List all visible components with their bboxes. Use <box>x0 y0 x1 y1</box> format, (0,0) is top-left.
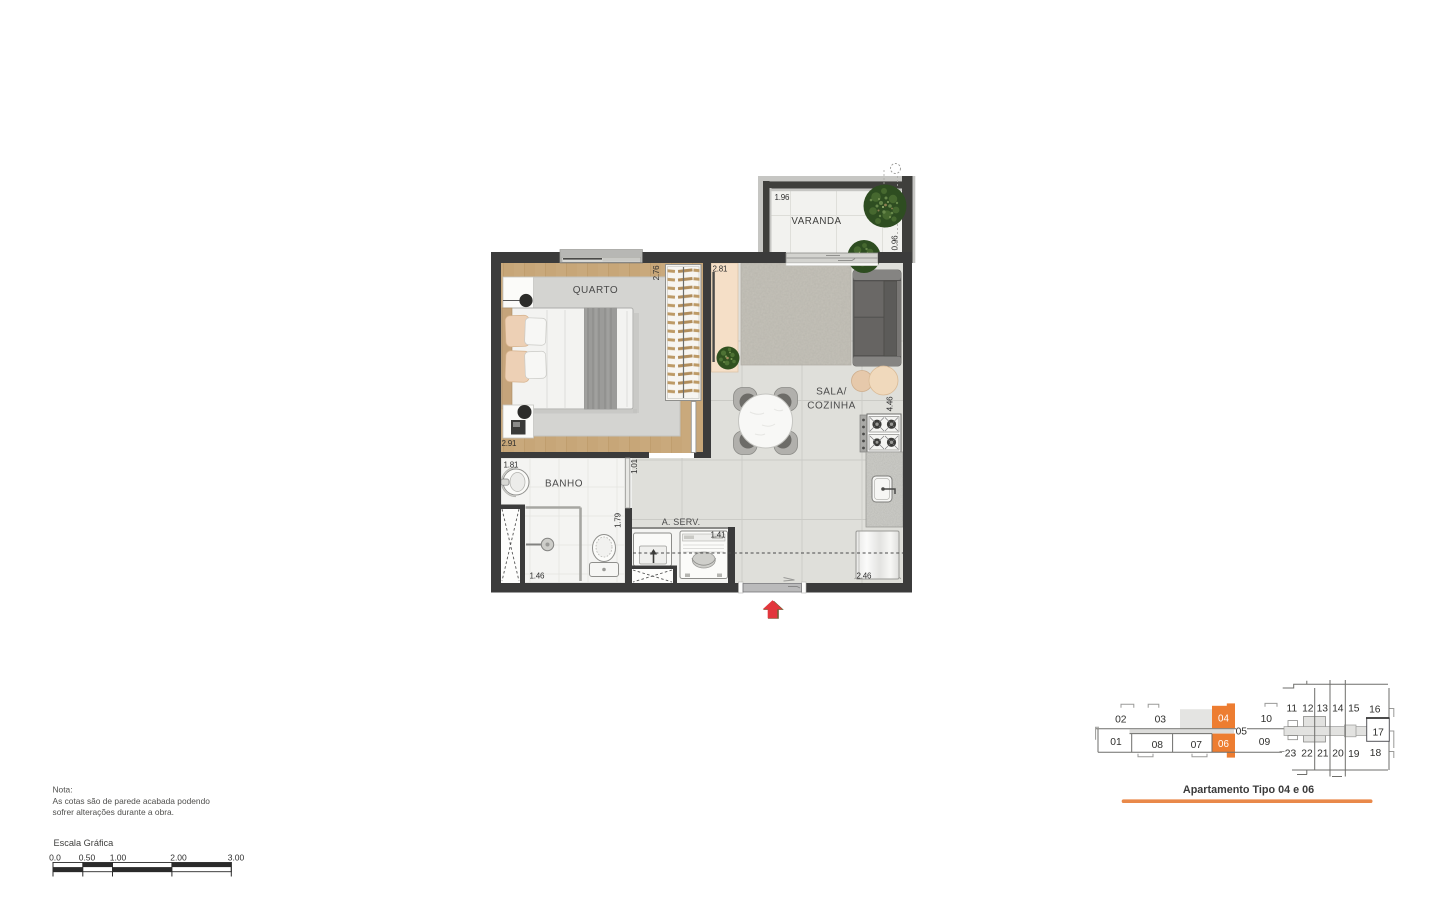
svg-text:15: 15 <box>1348 703 1360 714</box>
svg-text:2.76: 2.76 <box>652 265 661 281</box>
svg-text:02: 02 <box>1115 714 1127 725</box>
svg-text:1.01: 1.01 <box>630 458 639 474</box>
svg-text:2.91: 2.91 <box>502 439 518 448</box>
svg-text:QUARTO: QUARTO <box>573 285 618 296</box>
svg-text:13: 13 <box>1317 703 1329 714</box>
svg-text:1.00: 1.00 <box>110 853 127 863</box>
svg-text:20: 20 <box>1332 748 1344 759</box>
svg-text:1.46: 1.46 <box>530 572 546 581</box>
svg-text:1.79: 1.79 <box>614 512 623 528</box>
svg-text:Nota:: Nota: <box>53 785 73 795</box>
svg-text:08: 08 <box>1152 740 1164 751</box>
svg-text:21: 21 <box>1317 748 1329 759</box>
svg-text:1.41: 1.41 <box>711 531 727 540</box>
svg-text:2.81: 2.81 <box>713 265 729 274</box>
svg-text:22: 22 <box>1301 748 1313 759</box>
svg-text:2.46: 2.46 <box>857 572 873 581</box>
svg-text:0.96: 0.96 <box>891 235 900 251</box>
svg-text:18: 18 <box>1370 748 1382 759</box>
svg-text:05: 05 <box>1236 727 1248 738</box>
svg-text:3.00: 3.00 <box>228 853 245 863</box>
svg-text:12: 12 <box>1302 703 1314 714</box>
svg-text:VARANDA: VARANDA <box>791 216 841 227</box>
svg-text:0.0: 0.0 <box>49 853 61 863</box>
svg-text:BANHO: BANHO <box>545 479 583 490</box>
svg-text:04: 04 <box>1218 713 1229 724</box>
svg-text:06: 06 <box>1218 739 1229 750</box>
svg-text:16: 16 <box>1369 704 1381 715</box>
svg-text:03: 03 <box>1155 714 1167 725</box>
svg-text:23: 23 <box>1285 748 1297 759</box>
svg-text:As cotas são de parede acabada: As cotas são de parede acabada podendo <box>53 796 211 806</box>
svg-text:COZINHA: COZINHA <box>807 401 856 412</box>
svg-text:1.81: 1.81 <box>504 461 520 470</box>
svg-text:11: 11 <box>1286 703 1297 714</box>
svg-text:2.00: 2.00 <box>170 853 187 863</box>
svg-text:07: 07 <box>1191 740 1203 751</box>
svg-text:Apartamento Tipo 04 e 06: Apartamento Tipo 04 e 06 <box>1183 784 1314 796</box>
svg-text:09: 09 <box>1259 737 1271 748</box>
svg-text:4.46: 4.46 <box>886 396 895 412</box>
svg-text:A. SERV.: A. SERV. <box>662 517 701 527</box>
svg-text:0.50: 0.50 <box>79 853 96 863</box>
svg-text:sofrer alterações durante a ob: sofrer alterações durante a obra. <box>53 807 175 817</box>
svg-text:10: 10 <box>1261 714 1273 725</box>
svg-text:01: 01 <box>1110 737 1122 748</box>
svg-text:19: 19 <box>1348 749 1360 760</box>
svg-text:1.96: 1.96 <box>775 193 791 202</box>
svg-text:SALA/: SALA/ <box>816 387 847 398</box>
svg-text:14: 14 <box>1332 703 1344 714</box>
svg-text:17: 17 <box>1372 727 1384 738</box>
svg-text:Escala Gráfica: Escala Gráfica <box>54 838 115 848</box>
